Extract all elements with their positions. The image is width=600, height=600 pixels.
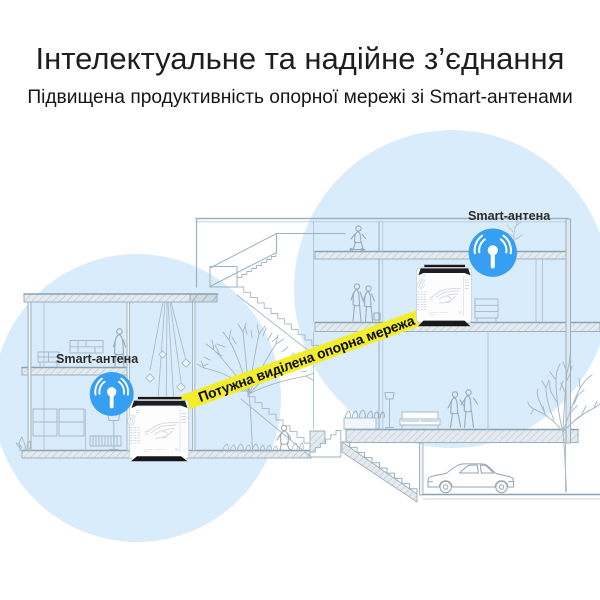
svg-text:Smart-антена: Smart-антена xyxy=(468,209,551,223)
svg-text:Інтелектуальне та надійне з’єд: Інтелектуальне та надійне з’єднання xyxy=(36,41,565,76)
svg-text:6: 6 xyxy=(417,276,425,292)
svg-text:Smart-антена: Smart-антена xyxy=(56,352,139,366)
svg-text:6: 6 xyxy=(127,412,136,429)
svg-text:Підвищена продуктивність опорн: Підвищена продуктивність опорної мережі … xyxy=(27,87,572,108)
